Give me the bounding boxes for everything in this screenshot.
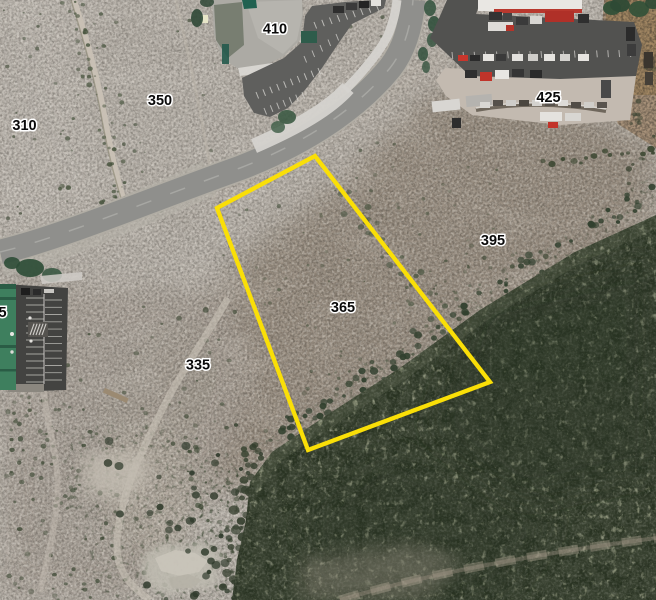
svg-text:395: 395 bbox=[481, 233, 505, 249]
svg-text:335: 335 bbox=[186, 358, 210, 374]
svg-text:310: 310 bbox=[12, 118, 36, 134]
svg-text:350: 350 bbox=[148, 93, 172, 109]
svg-text:425: 425 bbox=[536, 90, 560, 106]
svg-text:410: 410 bbox=[263, 22, 287, 38]
svg-text:5: 5 bbox=[0, 305, 7, 321]
svg-text:365: 365 bbox=[331, 300, 355, 316]
